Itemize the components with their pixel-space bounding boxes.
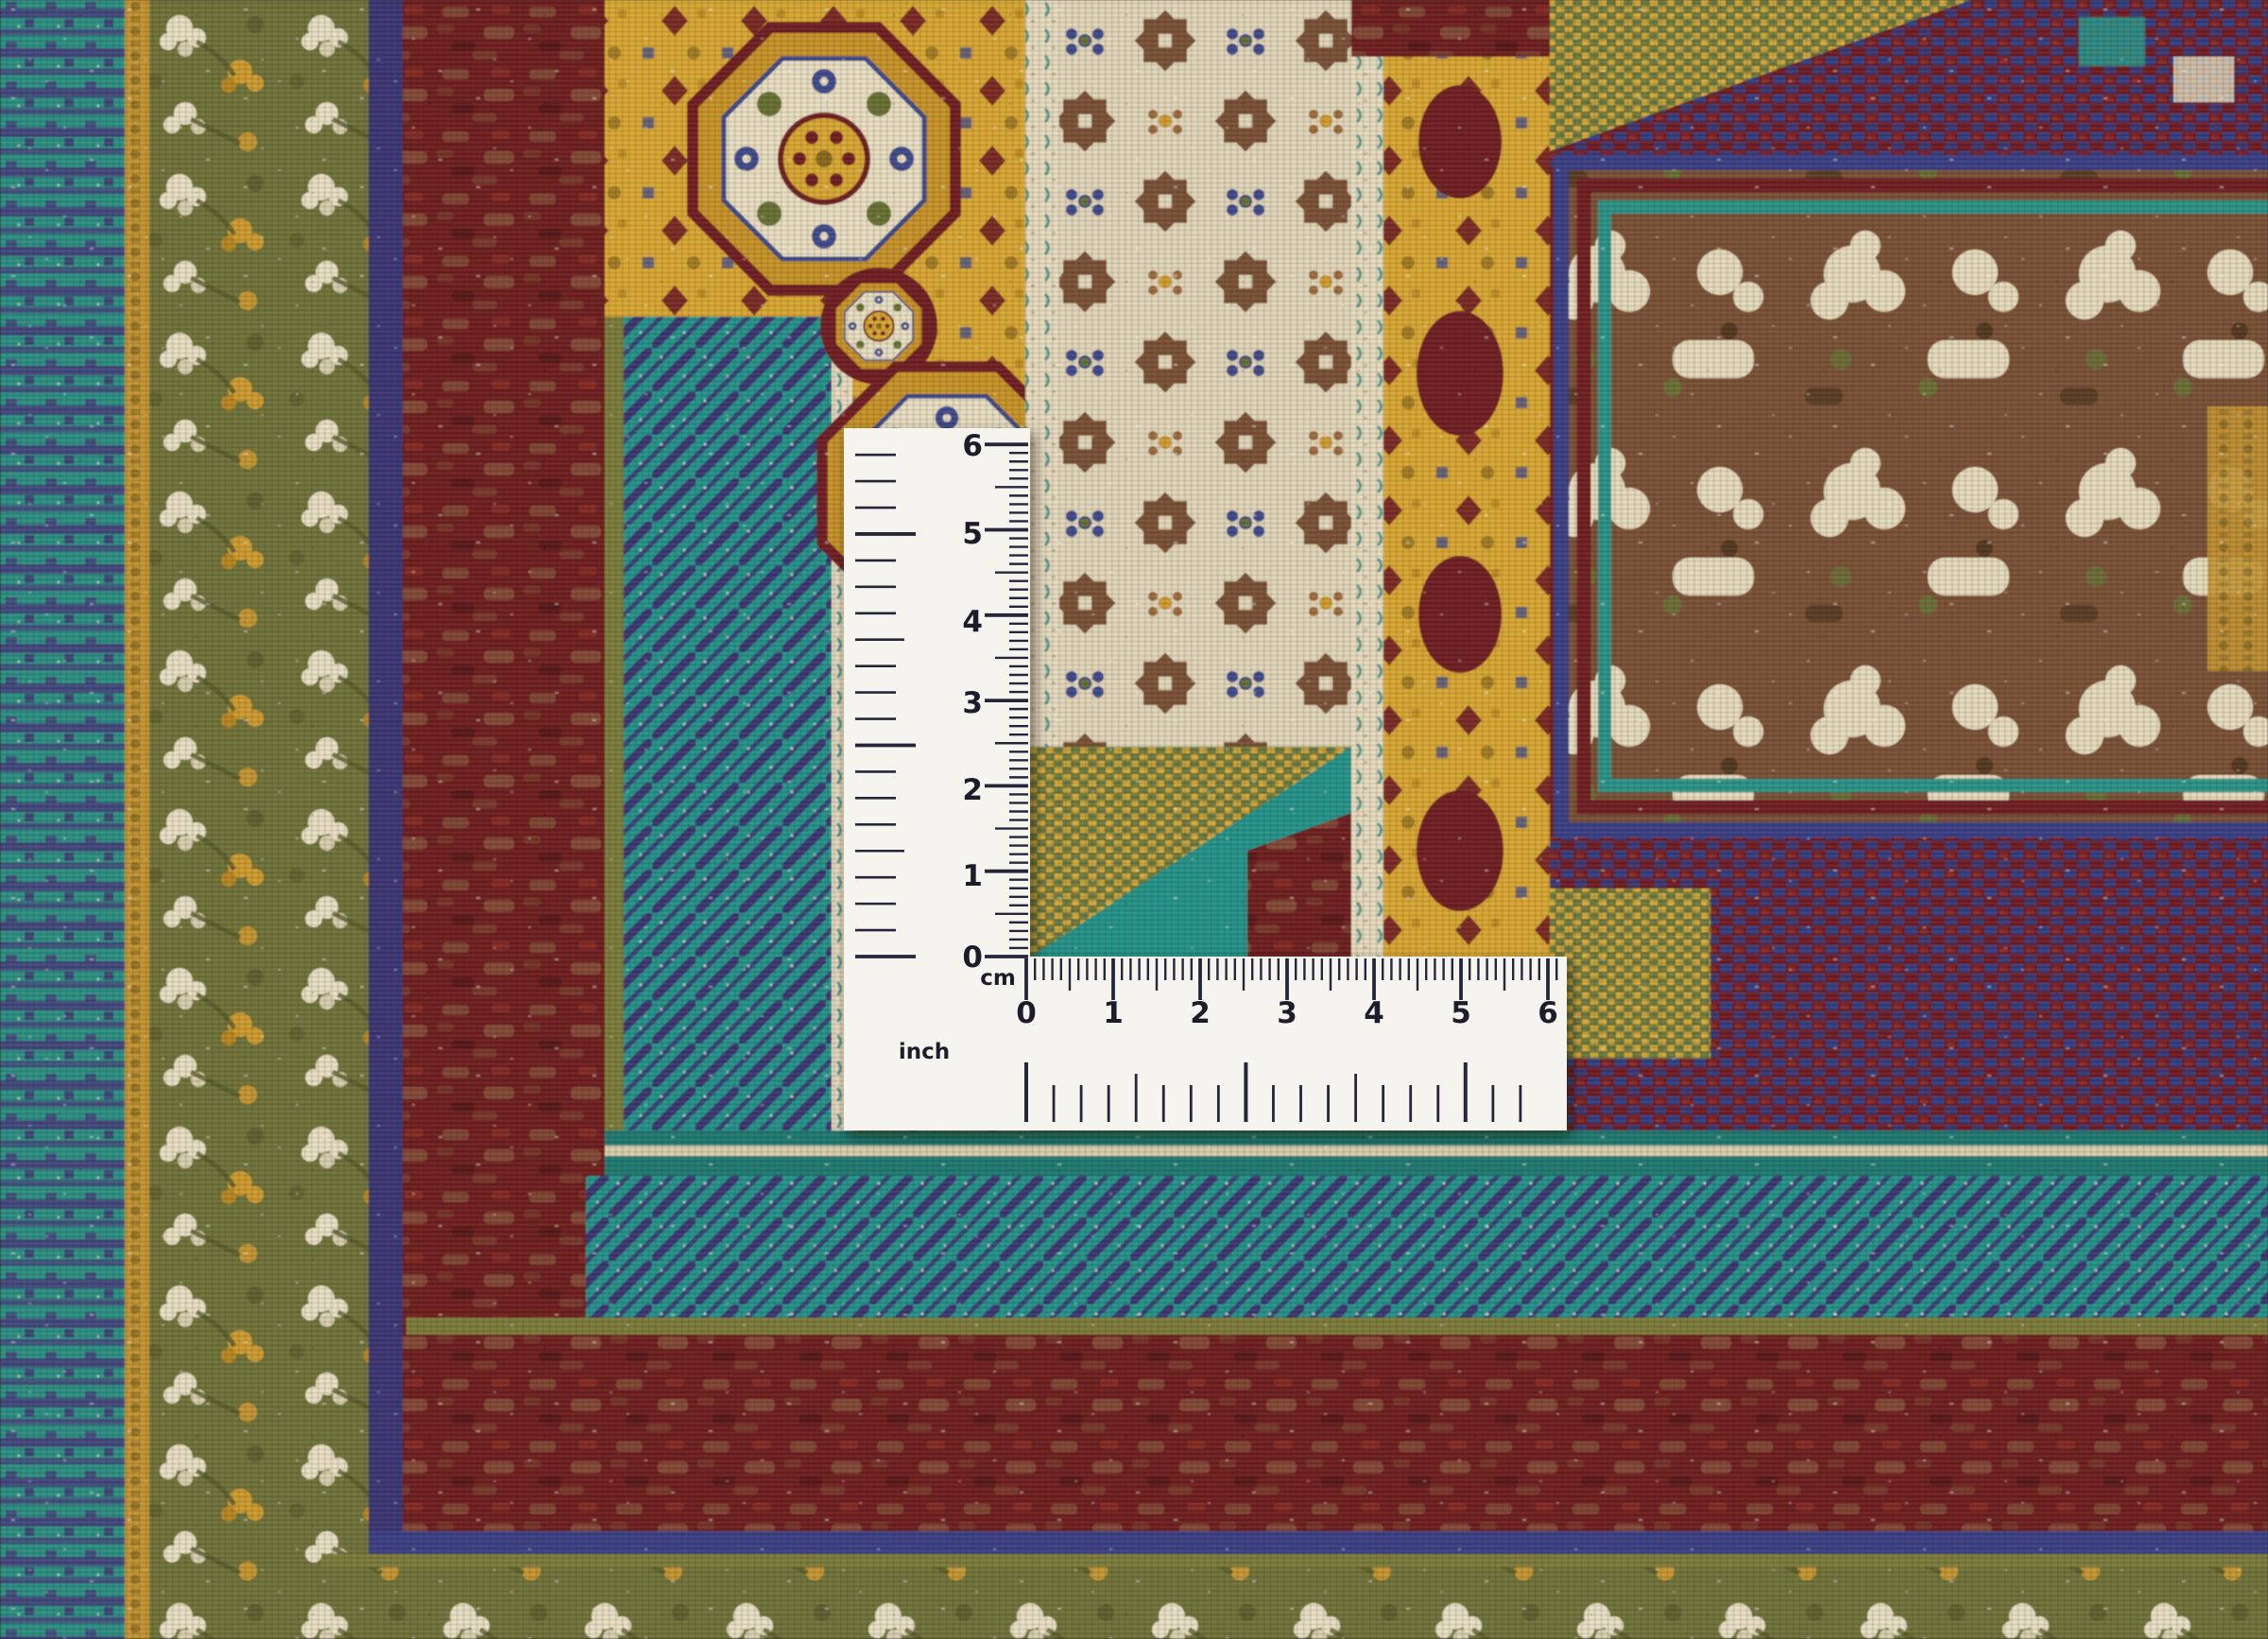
h-cm-5: 5 <box>1451 996 1471 1030</box>
fiber-specks <box>0 0 2268 1639</box>
h-cm-3: 3 <box>1277 996 1297 1030</box>
h-cm-6: 6 <box>1538 996 1558 1030</box>
v-cm-5: 5 <box>962 517 983 551</box>
v-cm-2: 2 <box>962 773 983 807</box>
v-cm-3: 3 <box>962 686 983 720</box>
h-cm-0: 0 <box>1016 996 1037 1030</box>
h-cm-2: 2 <box>1190 996 1211 1030</box>
h-cm-4: 4 <box>1364 996 1384 1030</box>
v-cm-4: 4 <box>962 605 983 639</box>
carpet-weave <box>0 0 2268 1639</box>
cm-unit-label: cm <box>980 966 1016 991</box>
v-cm-1: 1 <box>962 859 983 893</box>
carpet-photo: 6 5 4 3 2 1 0 cm 0 1 2 3 4 5 6 inch <box>0 0 2268 1639</box>
inch-unit-label: inch <box>899 1040 950 1064</box>
h-cm-1: 1 <box>1103 996 1124 1030</box>
v-cm-6: 6 <box>962 429 983 463</box>
